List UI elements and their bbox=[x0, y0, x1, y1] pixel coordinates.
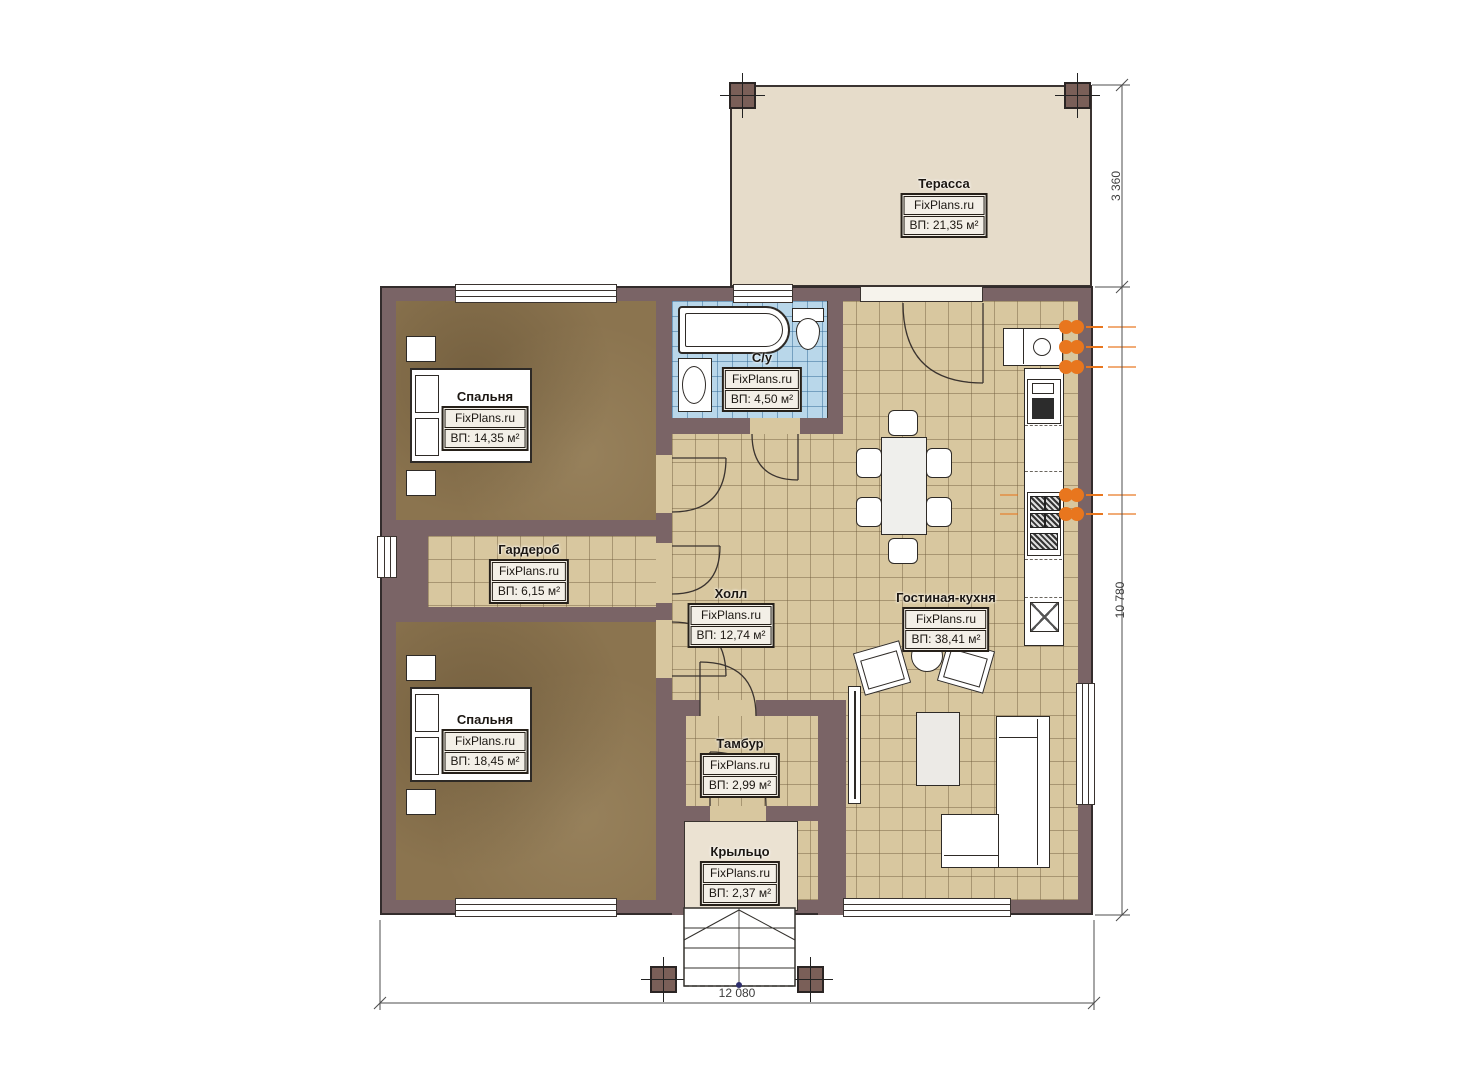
room-label-living-kitchen: Гостиная-кухня FixPlans.ru ВП: 38,41 м² bbox=[896, 590, 996, 652]
bedroom-2-door-opening bbox=[656, 620, 672, 678]
stove-icon bbox=[1027, 492, 1061, 556]
dimension-terrace-depth: 3 360 bbox=[1109, 156, 1123, 216]
brand-label: FixPlans.ru bbox=[492, 562, 566, 581]
floor-plan: Терасса FixPlans.ru ВП: 21,35 м² Спальня… bbox=[0, 0, 1473, 1080]
sink-basin bbox=[682, 366, 706, 404]
brand-label: FixPlans.ru bbox=[725, 370, 799, 389]
room-label-wardrobe: Гардероб FixPlans.ru ВП: 6,15 м² bbox=[489, 542, 569, 604]
armchair-seat bbox=[860, 650, 905, 689]
nightstand-icon bbox=[406, 336, 436, 362]
chair-icon bbox=[856, 448, 882, 478]
counter-divider bbox=[1025, 471, 1062, 472]
tambur-door-opening bbox=[700, 700, 756, 716]
porch-column-icon bbox=[650, 966, 677, 993]
bathtub-icon bbox=[678, 306, 790, 354]
label-box: FixPlans.ru ВП: 2,99 м² bbox=[700, 753, 780, 798]
label-box: FixPlans.ru ВП: 21,35 м² bbox=[901, 193, 988, 238]
room-name: Холл bbox=[688, 586, 775, 601]
bathtub-rim bbox=[685, 313, 783, 347]
chair-icon bbox=[856, 497, 882, 527]
room-name: Спальня bbox=[442, 712, 529, 727]
window-top-bedroom1 bbox=[455, 284, 617, 303]
room-label-terrace: Терасса FixPlans.ru ВП: 21,35 м² bbox=[901, 176, 988, 238]
counter-divider bbox=[1025, 425, 1062, 426]
porch-wall-left bbox=[672, 806, 684, 915]
label-box: FixPlans.ru ВП: 12,74 м² bbox=[688, 603, 775, 648]
sofa-chaise-icon bbox=[941, 814, 999, 868]
room-name: Гардероб bbox=[489, 542, 569, 557]
freezer-door bbox=[1032, 383, 1054, 394]
chair-icon bbox=[888, 410, 918, 436]
coffee-table-icon bbox=[916, 712, 960, 786]
oven-icon bbox=[1030, 533, 1058, 550]
area-label: ВП: 2,99 м² bbox=[703, 776, 777, 795]
area-label: ВП: 21,35 м² bbox=[904, 216, 985, 235]
area-label: ВП: 4,50 м² bbox=[725, 390, 799, 409]
dimension-building-width: 12 080 bbox=[697, 986, 777, 1000]
label-box: FixPlans.ru ВП: 6,15 м² bbox=[489, 559, 569, 604]
tv-screen-line bbox=[854, 691, 856, 799]
entry-steps bbox=[684, 908, 795, 988]
pillow-icon bbox=[415, 694, 439, 732]
fridge-door bbox=[1032, 398, 1054, 419]
room-name: С/у bbox=[722, 350, 802, 365]
room-label-tambur: Тамбур FixPlans.ru ВП: 2,99 м² bbox=[700, 736, 780, 798]
area-label: ВП: 2,37 м² bbox=[703, 884, 777, 903]
area-label: ВП: 38,41 м² bbox=[906, 630, 987, 649]
counter-divider bbox=[1025, 559, 1062, 560]
label-box: FixPlans.ru ВП: 2,37 м² bbox=[700, 861, 780, 906]
room-name: Тамбур bbox=[700, 736, 780, 751]
sofa-icon bbox=[996, 716, 1050, 868]
brand-label: FixPlans.ru bbox=[445, 732, 526, 751]
tambur-wall-left bbox=[672, 716, 686, 806]
label-box: FixPlans.ru ВП: 14,35 м² bbox=[442, 406, 529, 451]
sofa-arm-line bbox=[999, 737, 1037, 738]
kitchen-sink-icon bbox=[1033, 338, 1051, 356]
brand-label: FixPlans.ru bbox=[703, 756, 777, 775]
window-bottom-bedroom2 bbox=[455, 898, 617, 917]
counter-divider bbox=[1025, 597, 1062, 598]
room-label-hall: Холл FixPlans.ru ВП: 12,74 м² bbox=[688, 586, 775, 648]
chair-icon bbox=[926, 497, 952, 527]
chair-icon bbox=[926, 448, 952, 478]
brand-label: FixPlans.ru bbox=[445, 409, 526, 428]
terrace-door-opening bbox=[860, 286, 983, 302]
wardrobe-door-opening bbox=[656, 543, 672, 603]
dimension-building-depth: 10 780 bbox=[1113, 570, 1127, 630]
room-label-porch: Крыльцо FixPlans.ru ВП: 2,37 м² bbox=[700, 844, 780, 906]
kitchen-counter-icon bbox=[1003, 328, 1063, 366]
area-label: ВП: 14,35 м² bbox=[445, 429, 526, 448]
room-label-bathroom: С/у FixPlans.ru ВП: 4,50 м² bbox=[722, 350, 802, 412]
area-label: ВП: 12,74 м² bbox=[691, 626, 772, 645]
burner-icon bbox=[1045, 513, 1060, 528]
burner-icon bbox=[1045, 496, 1060, 511]
area-label: ВП: 6,15 м² bbox=[492, 582, 566, 601]
window-top-bathroom bbox=[733, 284, 793, 303]
pillow-icon bbox=[415, 737, 439, 775]
brand-label: FixPlans.ru bbox=[691, 606, 772, 625]
room-name: Гостиная-кухня bbox=[896, 590, 996, 605]
label-box: FixPlans.ru ВП: 18,45 м² bbox=[442, 729, 529, 774]
fridge-icon bbox=[1027, 379, 1061, 424]
room-name: Крыльцо bbox=[700, 844, 780, 859]
brand-label: FixPlans.ru bbox=[906, 610, 987, 629]
appliance-icon bbox=[1030, 602, 1059, 632]
room-label-bedroom1: Спальня FixPlans.ru ВП: 14,35 м² bbox=[442, 389, 529, 451]
sofa-back-line bbox=[944, 855, 998, 856]
terrace-column-icon bbox=[1064, 82, 1091, 109]
pillow-icon bbox=[415, 375, 439, 413]
window-bottom-living bbox=[843, 898, 1011, 917]
sofa-back-line bbox=[1037, 719, 1038, 865]
pillow-icon bbox=[415, 418, 439, 456]
burner-icon bbox=[1030, 513, 1045, 528]
bedroom-1-door-opening bbox=[656, 455, 672, 513]
nightstand-icon bbox=[406, 470, 436, 496]
brand-label: FixPlans.ru bbox=[904, 196, 985, 215]
dining-table-icon bbox=[881, 437, 927, 535]
room-label-bedroom2: Спальня FixPlans.ru ВП: 18,45 м² bbox=[442, 712, 529, 774]
counter-divider bbox=[1023, 329, 1024, 364]
brand-label: FixPlans.ru bbox=[703, 864, 777, 883]
area-label: ВП: 18,45 м² bbox=[445, 752, 526, 771]
bathroom-sink-icon bbox=[678, 358, 712, 412]
nightstand-icon bbox=[406, 789, 436, 815]
burner-icon bbox=[1030, 496, 1045, 511]
armchair-seat bbox=[943, 648, 988, 687]
room-name: Спальня bbox=[442, 389, 529, 404]
terrace-column-icon bbox=[729, 82, 756, 109]
window-right-living bbox=[1076, 683, 1095, 805]
label-box: FixPlans.ru ВП: 38,41 м² bbox=[903, 607, 990, 652]
chair-icon bbox=[888, 538, 918, 564]
window-left-wardrobe bbox=[377, 536, 397, 578]
nightstand-icon bbox=[406, 655, 436, 681]
tambur-wall-right bbox=[818, 700, 846, 915]
porch-column-icon bbox=[797, 966, 824, 993]
tv-icon bbox=[848, 686, 861, 804]
room-name: Терасса bbox=[901, 176, 988, 191]
label-box: FixPlans.ru ВП: 4,50 м² bbox=[722, 367, 802, 412]
entrance-door-opening bbox=[710, 806, 766, 821]
bathroom-door-opening bbox=[750, 418, 800, 434]
bathroom-wall-right bbox=[828, 301, 843, 434]
